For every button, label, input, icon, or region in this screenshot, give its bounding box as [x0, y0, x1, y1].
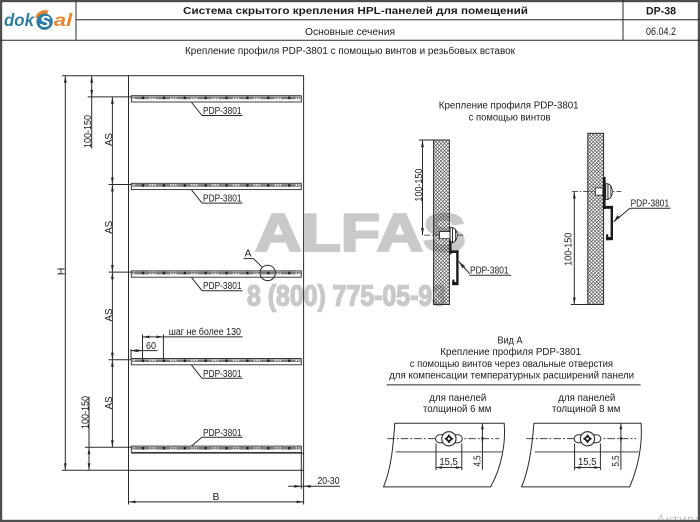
svg-text:4,5: 4,5 [472, 455, 483, 466]
svg-text:Вид A: Вид A [498, 334, 523, 346]
svg-text:толщиной 6 мм: толщиной 6 мм [423, 403, 492, 415]
svg-text:15,5: 15,5 [439, 457, 458, 468]
svg-text:15,5: 15,5 [578, 457, 597, 468]
svg-text:с помощью винтов: с помощью винтов [469, 112, 551, 124]
svg-text:Крепление профиля PDP-3801: Крепление профиля PDP-3801 [439, 100, 579, 112]
svg-text:100-150: 100-150 [81, 396, 92, 429]
svg-text:Основные сечения: Основные сечения [305, 27, 395, 38]
svg-text:AS: AS [104, 308, 115, 321]
svg-text:06.04.2: 06.04.2 [646, 26, 676, 38]
svg-text:B: B [212, 491, 219, 503]
svg-text:8 (800) 775-05-93: 8 (800) 775-05-93 [247, 281, 446, 313]
svg-text:толщиной 8 мм: толщиной 8 мм [552, 403, 621, 415]
svg-text:100-150: 100-150 [83, 115, 94, 148]
svg-text:H: H [56, 268, 68, 276]
svg-text:al: al [54, 10, 74, 30]
svg-text:A: A [244, 248, 251, 260]
svg-text:Крепление профиля PDP-3801 с п: Крепление профиля PDP-3801 с помощью вин… [185, 45, 516, 57]
svg-text:Система скрытого крепления HPL: Система скрытого крепления HPL-панелей д… [183, 5, 528, 17]
svg-text:PDP-3801: PDP-3801 [631, 198, 670, 209]
svg-text:AS: AS [104, 396, 115, 409]
svg-text:DP-38: DP-38 [646, 6, 676, 18]
svg-text:AS: AS [104, 133, 115, 146]
svg-text:60: 60 [146, 341, 156, 352]
svg-text:20-30: 20-30 [318, 476, 340, 487]
svg-text:для компенсации температурных: для компенсации температурных расширений… [389, 369, 634, 381]
svg-text:Крепление профиля PDP-3801: Крепление профиля PDP-3801 [440, 346, 581, 358]
svg-text:шаг не более 130: шаг не более 130 [169, 326, 242, 338]
svg-text:с помощью винтов через овальны: с помощью винтов через овальные отверсти… [410, 358, 613, 370]
svg-text:100-150: 100-150 [563, 232, 574, 265]
svg-text:5,5: 5,5 [611, 455, 622, 466]
svg-text:AS: AS [104, 220, 115, 233]
svg-text:100-150: 100-150 [414, 168, 425, 201]
svg-text:S: S [40, 14, 51, 31]
svg-text:dok: dok [4, 10, 35, 30]
